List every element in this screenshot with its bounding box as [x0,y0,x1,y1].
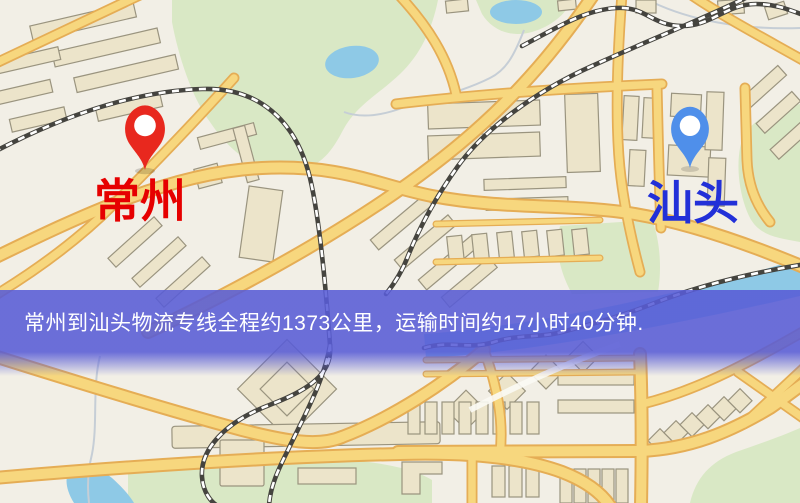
route-info-banner: 常州到汕头物流专线全程约1373公里，运输时间约17小时40分钟. [0,290,800,376]
destination-label: 汕头 [647,177,739,229]
map-canvas[interactable]: 常州 汕头 [0,0,800,503]
route-info-text: 常州到汕头物流专线全程约1373公里，运输时间约17小时40分钟. [24,312,644,335]
origin-label: 常州 [94,175,186,227]
map-screenshot: 常州 汕头 常州到汕头物流专线全程约1373公里，运输时间约17小时40分钟. [0,0,800,503]
